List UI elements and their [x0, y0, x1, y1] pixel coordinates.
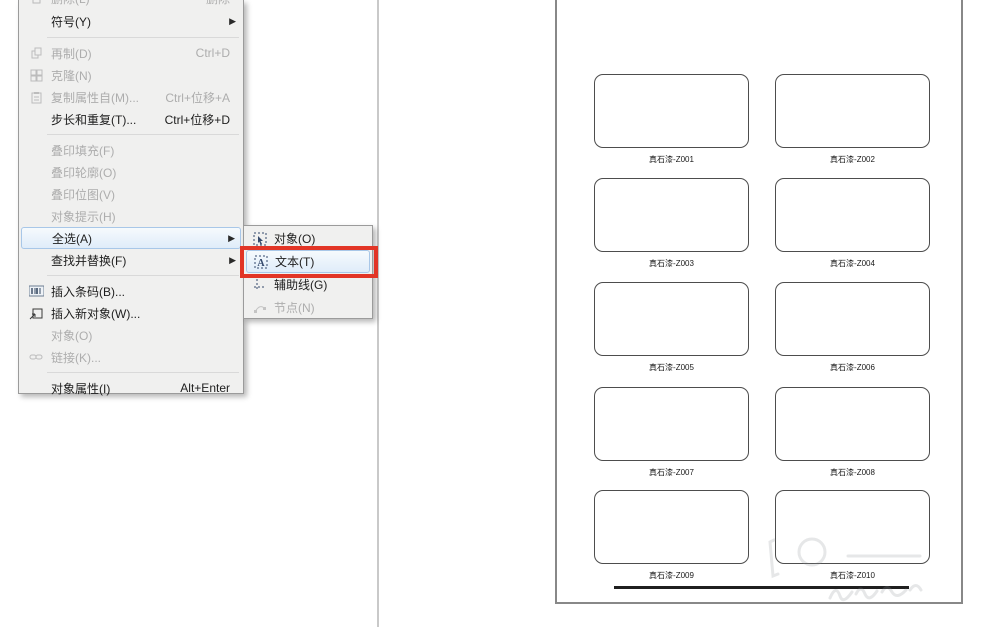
- menu-item-label: 叠印位图(V): [51, 186, 115, 203]
- menu-item-label: 步长和重复(T)...: [51, 111, 136, 128]
- submenu-item-label: 对象(O): [274, 230, 315, 247]
- pick-objects-icon: [248, 232, 272, 246]
- menu-item-overprint-bitmap[interactable]: 叠印位图(V): [19, 183, 243, 205]
- menu-item-object[interactable]: 对象(O): [19, 324, 243, 346]
- menu-item-label: 全选(A): [52, 230, 92, 247]
- menu-item-insert-new-object[interactable]: 插入新对象(W)...: [19, 302, 243, 324]
- menu-separator: [47, 134, 239, 135]
- clipboard-icon: [23, 91, 49, 104]
- menu-item-label: 克隆(N): [51, 67, 92, 84]
- swatch-box[interactable]: [775, 178, 930, 252]
- menu-item-label: 对象(O): [51, 327, 92, 344]
- swatch-cell[interactable]: 真石漆-Z010: [775, 490, 930, 581]
- swatch-label: 真石漆-Z010: [775, 570, 930, 581]
- menu-item-copy-properties-from[interactable]: 复制属性自(M)... Ctrl+位移+A: [19, 86, 243, 108]
- swatch-label: 真石漆-Z003: [594, 258, 749, 269]
- menu-item-overprint-outline[interactable]: 叠印轮廓(O): [19, 161, 243, 183]
- document-page: 真石漆-Z001 真石漆-Z002 真石漆-Z003 真石漆-Z004 真石漆-…: [555, 0, 963, 604]
- menu-item-shortcut: Alt+Enter: [180, 381, 238, 395]
- menu-item-shortcut: Ctrl+D: [196, 46, 238, 60]
- menu-item-label: 插入新对象(W)...: [51, 305, 140, 322]
- menu-item-label: 删除(L): [51, 0, 90, 7]
- menu-item-shortcut: 删除: [206, 0, 238, 7]
- swatch-cell[interactable]: 真石漆-Z009: [594, 490, 749, 581]
- swatch-label: 真石漆-Z009: [594, 570, 749, 581]
- menu-item-overprint-fill[interactable]: 叠印填充(F): [19, 139, 243, 161]
- submenu-arrow-icon: ▶: [229, 255, 238, 266]
- menu-item-symbol[interactable]: 符号(Y) ▶: [19, 10, 243, 33]
- swatch-box[interactable]: [775, 74, 930, 148]
- menu-item-label: 再制(D): [51, 45, 92, 62]
- submenu-arrow-icon: ▶: [228, 233, 237, 244]
- swatch-cell[interactable]: 真石漆-Z006: [775, 282, 930, 373]
- menu-item-links[interactable]: 链接(K)...: [19, 346, 243, 368]
- menu-item-label: 叠印填充(F): [51, 142, 114, 159]
- menu-item-duplicate[interactable]: 再制(D) Ctrl+D: [19, 42, 243, 64]
- menu-item-step-and-repeat[interactable]: 步长和重复(T)... Ctrl+位移+D: [19, 108, 243, 130]
- swatch-cell[interactable]: 真石漆-Z002: [775, 74, 930, 165]
- swatch-cell[interactable]: 真石漆-Z003: [594, 178, 749, 269]
- menu-item-label: 复制属性自(M)...: [51, 89, 139, 106]
- insert-object-icon: [23, 306, 49, 320]
- menu-separator: [47, 372, 239, 373]
- barcode-icon: [23, 285, 49, 297]
- menu-item-find-and-replace[interactable]: 查找并替换(F) ▶: [19, 249, 243, 271]
- menu-item-select-all[interactable]: 全选(A) ▶: [21, 227, 241, 249]
- swatch-box[interactable]: [775, 387, 930, 461]
- swatch-box[interactable]: [594, 490, 749, 564]
- link-icon: [23, 353, 49, 361]
- trash-icon: [23, 0, 49, 5]
- swatch-label: 真石漆-Z006: [775, 362, 930, 373]
- menu-item-delete-clipped[interactable]: 删除(L) 删除: [19, 0, 243, 10]
- swatch-box[interactable]: [594, 178, 749, 252]
- swatch-cell[interactable]: 真石漆-Z004: [775, 178, 930, 269]
- menu-item-label: 叠印轮廓(O): [51, 164, 116, 181]
- swatch-label: 真石漆-Z005: [594, 362, 749, 373]
- page-rule-line: [614, 586, 909, 589]
- swatch-box[interactable]: [775, 490, 930, 564]
- menu-separator: [47, 275, 239, 276]
- menu-item-object-hinting[interactable]: 对象提示(H): [19, 205, 243, 227]
- clone-icon: [23, 69, 49, 82]
- menu-item-label: 链接(K)...: [51, 349, 101, 366]
- menu-item-label: 对象属性(I): [51, 380, 110, 397]
- menu-item-insert-barcode[interactable]: 插入条码(B)...: [19, 280, 243, 302]
- swatch-label: 真石漆-Z001: [594, 154, 749, 165]
- swatch-label: 真石漆-Z007: [594, 467, 749, 478]
- swatch-label: 真石漆-Z002: [775, 154, 930, 165]
- menu-item-shortcut: Ctrl+位移+A: [165, 89, 238, 106]
- swatch-label: 真石漆-Z008: [775, 467, 930, 478]
- swatch-label: 真石漆-Z004: [775, 258, 930, 269]
- guidelines-icon: [248, 278, 272, 292]
- swatch-cell[interactable]: 真石漆-Z005: [594, 282, 749, 373]
- menu-item-label: 对象提示(H): [51, 208, 116, 225]
- submenu-item-label: 节点(N): [274, 299, 315, 316]
- swatch-cell[interactable]: 真石漆-Z001: [594, 74, 749, 165]
- context-menu: 删除(L) 删除 符号(Y) ▶ 再制(D) Ctrl+D 克隆(N) 复制属性…: [18, 0, 244, 394]
- menu-item-object-properties[interactable]: 对象属性(I) Alt+Enter: [19, 377, 243, 399]
- swatch-box[interactable]: [775, 282, 930, 356]
- submenu-item-label: 辅助线(G): [274, 276, 327, 293]
- red-highlight-annotation: [240, 246, 378, 278]
- swatch-cell[interactable]: 真石漆-Z007: [594, 387, 749, 478]
- menu-separator: [47, 37, 239, 38]
- swatch-cell[interactable]: 真石漆-Z008: [775, 387, 930, 478]
- submenu-item-nodes[interactable]: 节点(N): [244, 296, 372, 319]
- menu-item-label: 插入条码(B)...: [51, 283, 125, 300]
- nodes-icon: [248, 301, 272, 315]
- menu-item-clone[interactable]: 克隆(N): [19, 64, 243, 86]
- submenu-arrow-icon: ▶: [229, 16, 238, 27]
- swatch-box[interactable]: [594, 387, 749, 461]
- duplicate-icon: [23, 47, 49, 60]
- menu-item-label: 符号(Y): [51, 13, 91, 30]
- menu-item-label: 查找并替换(F): [51, 252, 126, 269]
- swatch-box[interactable]: [594, 74, 749, 148]
- menu-item-shortcut: Ctrl+位移+D: [165, 111, 238, 128]
- swatch-box[interactable]: [594, 282, 749, 356]
- window-divider: [377, 0, 379, 627]
